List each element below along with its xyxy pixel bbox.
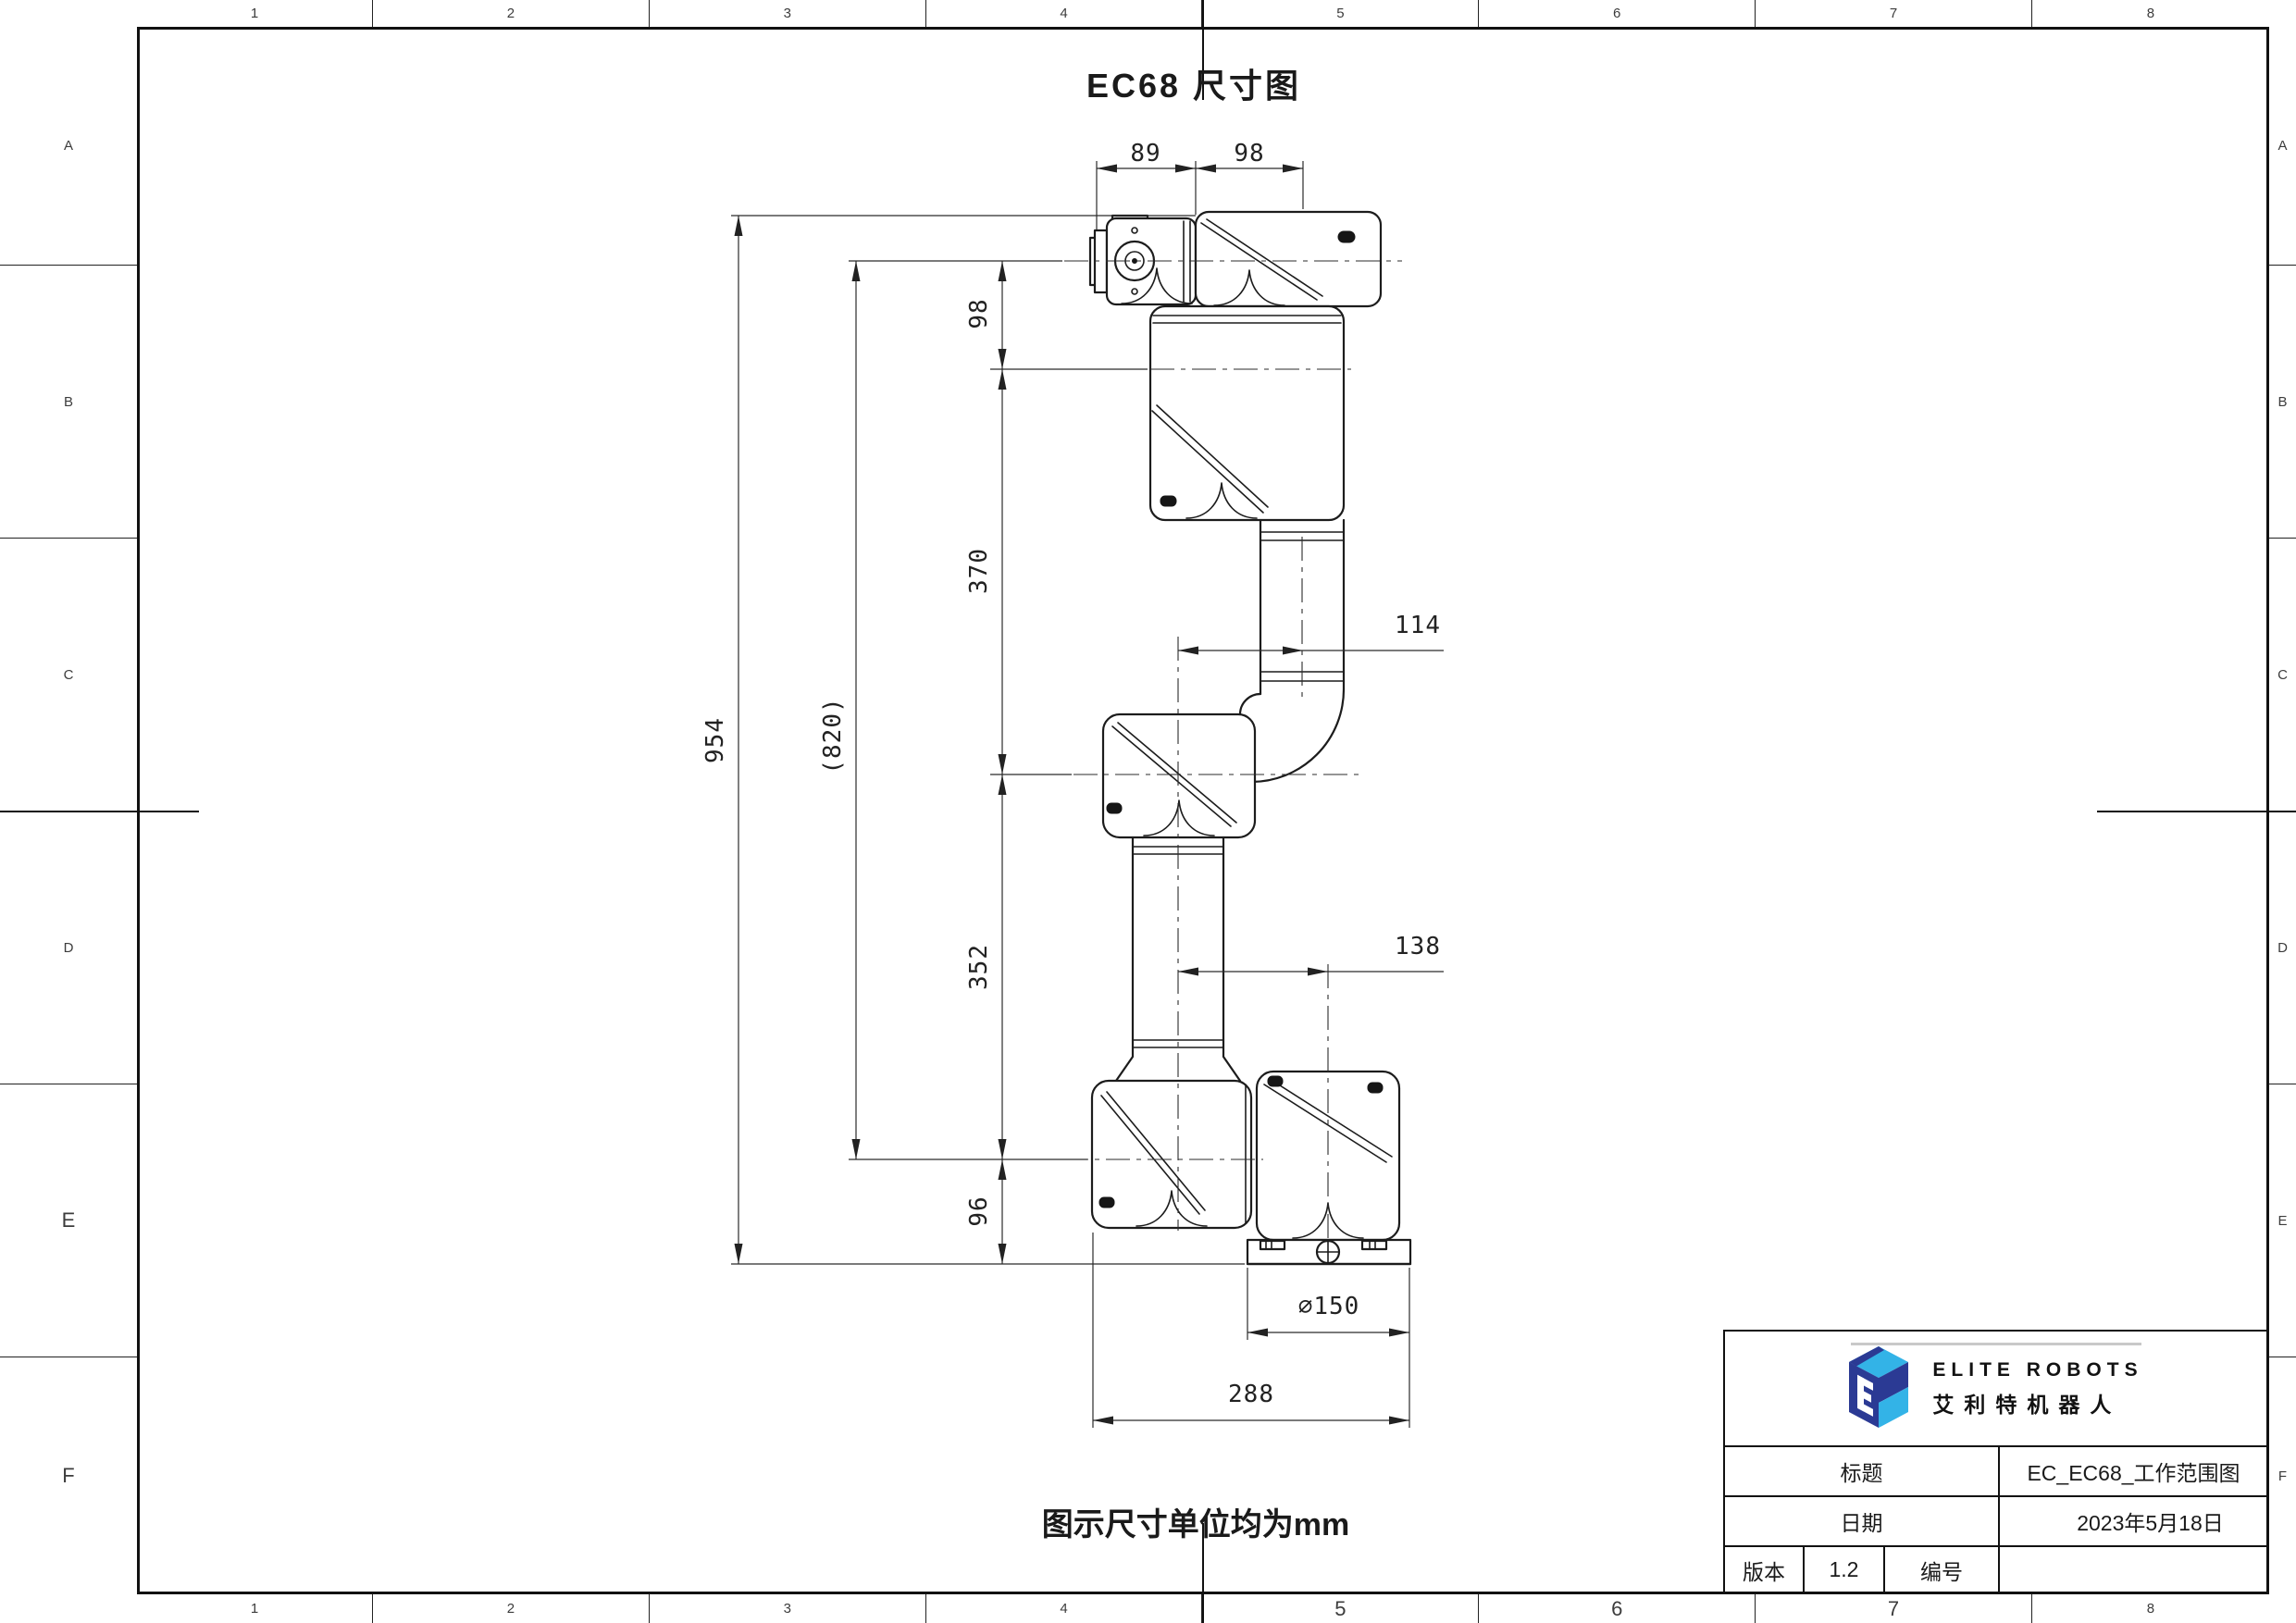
title-block: ELITE ROBOTS 艾利特机器人 标题 EC_EC68_工作范围图 日期 … bbox=[1723, 1330, 2269, 1594]
shoulder-slot bbox=[1099, 1197, 1114, 1208]
dim-150: ∅150 bbox=[1298, 1293, 1360, 1320]
field-version-value: 1.2 bbox=[1803, 1545, 1883, 1592]
field-title-value: EC_EC68_工作范围图 bbox=[1998, 1445, 2267, 1495]
field-number-value bbox=[1998, 1545, 2267, 1592]
brand-name-en: ELITE ROBOTS bbox=[1932, 1359, 2142, 1381]
elbow-bend-outer bbox=[1251, 689, 1344, 782]
base-slot-a bbox=[1268, 1076, 1283, 1086]
wrist2-slot bbox=[1338, 231, 1355, 242]
dim-89: 89 bbox=[1130, 140, 1160, 167]
dim-288: 288 bbox=[1228, 1381, 1274, 1408]
dim-98-top: 98 bbox=[1234, 140, 1264, 167]
brand-text: ELITE ROBOTS 艾利特机器人 bbox=[1932, 1359, 2142, 1419]
drawing-sheet: 12345678 12345678 ABCDEF ABCDEF EC68 尺寸图… bbox=[0, 0, 2296, 1623]
wrist1-slot bbox=[1160, 496, 1176, 506]
dim-954: 954 bbox=[701, 717, 729, 763]
dim-98: 98 bbox=[965, 298, 993, 328]
field-title-label: 标题 bbox=[1725, 1445, 1998, 1495]
wrist2-housing bbox=[1196, 212, 1381, 306]
dim-820: (820) bbox=[819, 697, 847, 774]
dim-138: 138 bbox=[1395, 933, 1441, 960]
dim-96: 96 bbox=[965, 1196, 993, 1226]
dim-114: 114 bbox=[1395, 612, 1441, 639]
logo-cell: ELITE ROBOTS 艾利特机器人 bbox=[1725, 1332, 2267, 1445]
field-number-label: 编号 bbox=[1883, 1545, 1998, 1592]
elite-robots-logo-icon bbox=[1849, 1346, 1908, 1431]
elbow-bend-inner bbox=[1240, 694, 1260, 714]
logo-divider-rule bbox=[1851, 1343, 2141, 1345]
field-version-label: 版本 bbox=[1725, 1545, 1803, 1592]
dim-370: 370 bbox=[965, 548, 993, 594]
base-slot-b bbox=[1368, 1083, 1383, 1093]
flange-axis-dot bbox=[1133, 259, 1137, 264]
base-slot-right bbox=[1362, 1241, 1386, 1249]
brand-name-cn: 艾利特机器人 bbox=[1932, 1387, 2142, 1419]
dim-352: 352 bbox=[965, 944, 993, 990]
elbow-slot bbox=[1107, 803, 1122, 813]
field-date-value: 2023年5月18日 bbox=[1998, 1495, 2267, 1545]
field-date-label: 日期 bbox=[1725, 1495, 1998, 1545]
base-slot-left bbox=[1260, 1241, 1285, 1249]
